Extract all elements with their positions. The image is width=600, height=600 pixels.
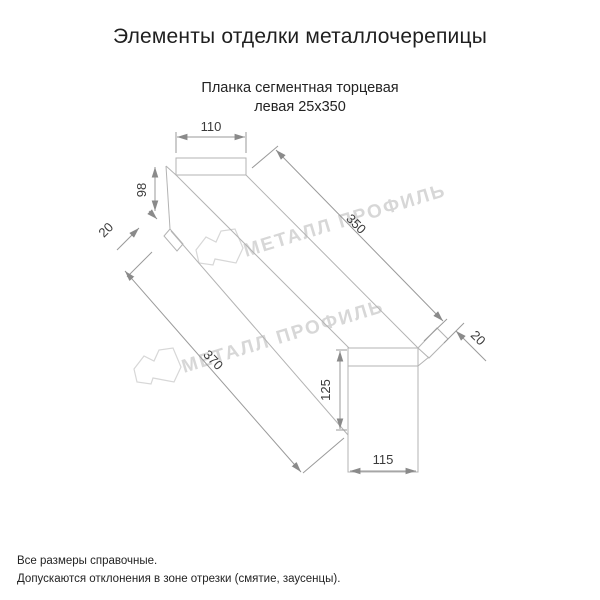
catalog-page: Элементы отделки металлочерепицы Планка … <box>0 0 600 600</box>
dim-right-hem: 20 <box>444 323 489 361</box>
dim-end-width: 115 <box>350 452 416 471</box>
end-top-corner-edge <box>166 166 176 175</box>
dimension-line <box>125 271 301 472</box>
watermark-bottom: МЕТАЛЛ ПРОФИЛЬ <box>134 296 387 384</box>
footer-note-2: Допускаются отклонения в зоне отрезки (с… <box>17 573 340 585</box>
extension-line <box>444 323 464 343</box>
dim-top-width-label: 110 <box>201 119 222 134</box>
dim-left-hem-label: 20 <box>95 219 116 240</box>
dim-top-width: 110 <box>176 119 246 153</box>
right-end-fold-line <box>348 357 429 366</box>
footer-note-1: Все размеры справочные. <box>17 555 157 567</box>
top-flange-end-face <box>176 158 246 175</box>
extension-line <box>127 252 344 473</box>
dimension-line <box>117 228 139 250</box>
extension-line <box>176 132 246 153</box>
dim-right-hem-label: 20 <box>468 327 489 348</box>
left-end-edge <box>166 166 170 229</box>
dim-left-height: 98 <box>134 167 157 219</box>
dim-left-hem: 20 <box>95 219 139 250</box>
leader-arrow <box>149 211 157 219</box>
dim-end-height-label: 125 <box>318 379 333 401</box>
dim-left-height-label: 98 <box>134 183 149 197</box>
technical-drawing: МЕТАЛЛ ПРОФИЛЬ МЕТАЛЛ ПРОФИЛЬ 110 <box>0 0 600 600</box>
dim-end-height: 125 <box>318 350 347 430</box>
left-hem-fold <box>164 229 183 251</box>
metall-profil-logo-icon <box>134 348 181 384</box>
extension-line <box>336 350 347 430</box>
dim-end-width-label: 115 <box>373 452 394 467</box>
flange-fold-line <box>176 175 349 348</box>
